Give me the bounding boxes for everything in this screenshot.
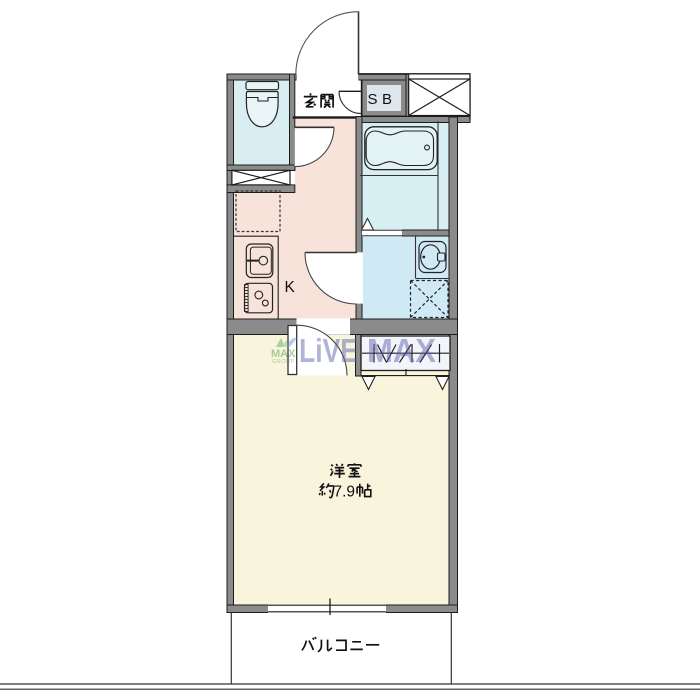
svg-text:MAX: MAX — [367, 332, 436, 369]
svg-text:K: K — [285, 279, 296, 296]
svg-text:GROUP: GROUP — [272, 359, 295, 365]
svg-text:7.9: 7.9 — [334, 484, 356, 501]
svg-text:LiVE: LiVE — [299, 332, 358, 369]
svg-text:SB: SB — [368, 91, 397, 108]
